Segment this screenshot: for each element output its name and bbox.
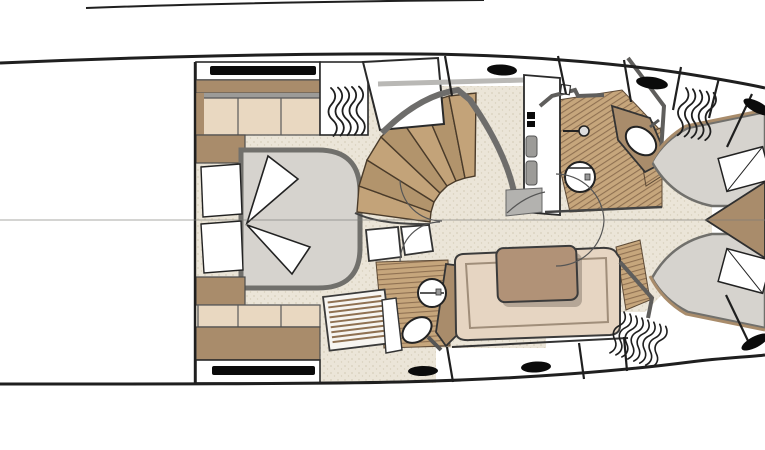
louvered-panel bbox=[323, 289, 391, 350]
salon-sofa bbox=[452, 246, 628, 347]
toilet-icon bbox=[565, 162, 595, 192]
top-shelf-edge bbox=[196, 93, 320, 98]
mattress bbox=[241, 150, 360, 288]
pillow bbox=[201, 164, 242, 217]
yacht-floorplan-page bbox=[0, 0, 765, 450]
head-door-leaf bbox=[366, 227, 401, 261]
entry-step bbox=[506, 188, 542, 216]
dresser-top bbox=[196, 135, 245, 163]
bottom-cabinet-band bbox=[196, 327, 320, 360]
bottom-locker-run bbox=[198, 305, 320, 327]
sofa-back-cushion bbox=[496, 246, 578, 303]
hull-window-top bbox=[210, 66, 316, 75]
shower-handset-icon bbox=[579, 126, 589, 136]
hull-window-bottom bbox=[212, 366, 315, 375]
toilet-flush-icon bbox=[436, 289, 441, 295]
pillow bbox=[201, 221, 243, 273]
top-locker-run bbox=[198, 98, 320, 135]
dresser-bottom bbox=[196, 277, 245, 305]
toilet-flush-icon bbox=[585, 174, 590, 180]
yacht-floorplan bbox=[0, 0, 765, 450]
switch-panel-icon bbox=[527, 121, 535, 127]
locker-icon bbox=[526, 136, 537, 157]
switch-panel-icon bbox=[527, 112, 535, 119]
locker-icon bbox=[526, 161, 537, 185]
top-cabinet-band bbox=[196, 80, 320, 93]
